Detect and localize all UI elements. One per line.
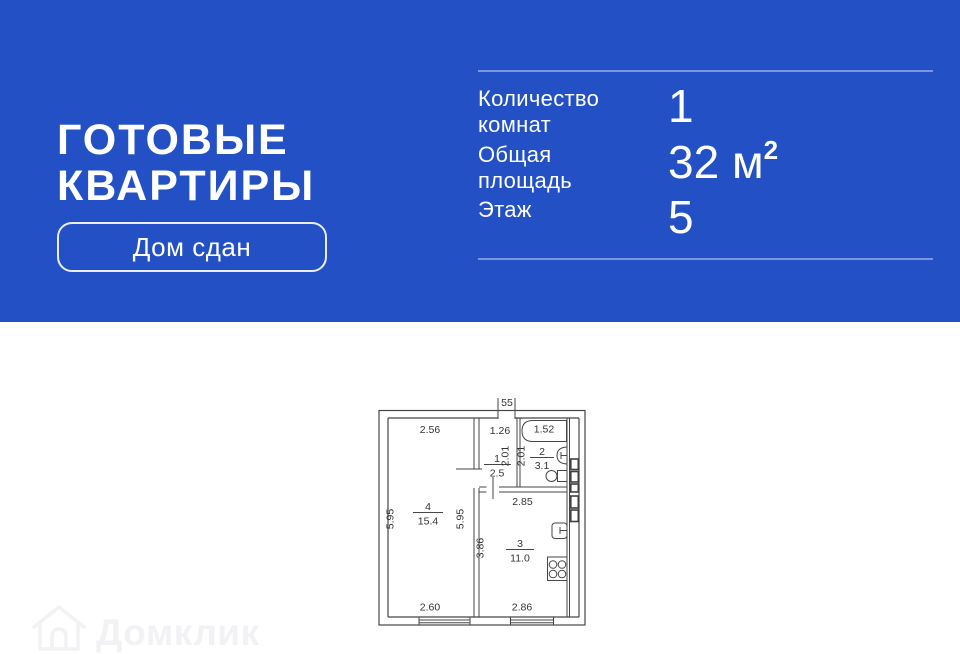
room2-dim-left: 2.01 — [516, 446, 528, 467]
stat-row-floor: Этаж 5 — [478, 197, 933, 240]
window-icons — [419, 617, 554, 625]
entrance-width-label: 55 — [501, 397, 513, 409]
exterior-walls — [379, 411, 585, 626]
room4-dim-top: 2.56 — [420, 424, 441, 436]
room4-number: 4 — [425, 501, 431, 513]
room1-dim-right: 2.01 — [500, 446, 512, 467]
room3-number: 3 — [517, 538, 523, 550]
room1-dim-top: 1.26 — [490, 425, 511, 437]
wash-basin-icon — [557, 447, 567, 464]
apartment-stats-panel: Количество комнат 1 Общая площадь 32 м2 … — [478, 70, 933, 260]
room3-dim-bottom: 2.86 — [512, 602, 533, 614]
house-delivered-badge[interactable]: Дом сдан — [57, 222, 327, 272]
vent-blocks-icon — [571, 459, 579, 522]
total-area-label: Общая площадь — [478, 142, 668, 194]
room-label-underlines — [413, 458, 554, 550]
room3-area: 11.0 — [510, 553, 530, 565]
floor-value: 5 — [668, 194, 694, 240]
promo-banner: ГОТОВЫЕ КВАРТИРЫ Дом сдан Количество ком… — [0, 0, 960, 322]
stat-row-rooms: Количество комнат 1 — [478, 86, 933, 138]
room4-area: 15.4 — [418, 516, 439, 528]
room4-dim-right: 5.95 — [455, 509, 467, 530]
room2-area: 3.1 — [535, 460, 550, 472]
room1-number: 1 — [494, 453, 500, 465]
floor-label: Этаж — [478, 197, 668, 223]
room4-dim-bottom: 2.60 — [420, 602, 441, 614]
banner-title: ГОТОВЫЕ КВАРТИРЫ — [57, 117, 315, 209]
domclick-watermark: Домклик — [30, 601, 260, 654]
room3-dim-left: 3.86 — [475, 538, 487, 559]
room2-dim-top: 1.52 — [534, 424, 555, 436]
rooms-count-value: 1 — [668, 83, 694, 129]
domclick-watermark-text: Домклик — [96, 612, 260, 654]
house-delivered-label: Дом сдан — [133, 232, 251, 263]
room4-dim-left: 5.95 — [385, 509, 397, 530]
room2-number: 2 — [539, 446, 545, 458]
stat-row-area: Общая площадь 32 м2 — [478, 142, 933, 194]
toilet-icon — [546, 471, 567, 482]
room1-area: 2.5 — [490, 468, 505, 480]
total-area-value: 32 м2 — [668, 139, 778, 185]
floor-plan: 55 2.56 5.95 5.95 2.60 4 15.4 1.26 2.01 … — [372, 392, 608, 638]
kitchen-sink-icon — [552, 523, 567, 539]
stove-icon — [548, 557, 568, 581]
room3-dim-top: 2.85 — [512, 496, 533, 508]
rooms-count-label: Количество комнат — [478, 86, 668, 138]
domclick-house-icon — [30, 601, 88, 651]
